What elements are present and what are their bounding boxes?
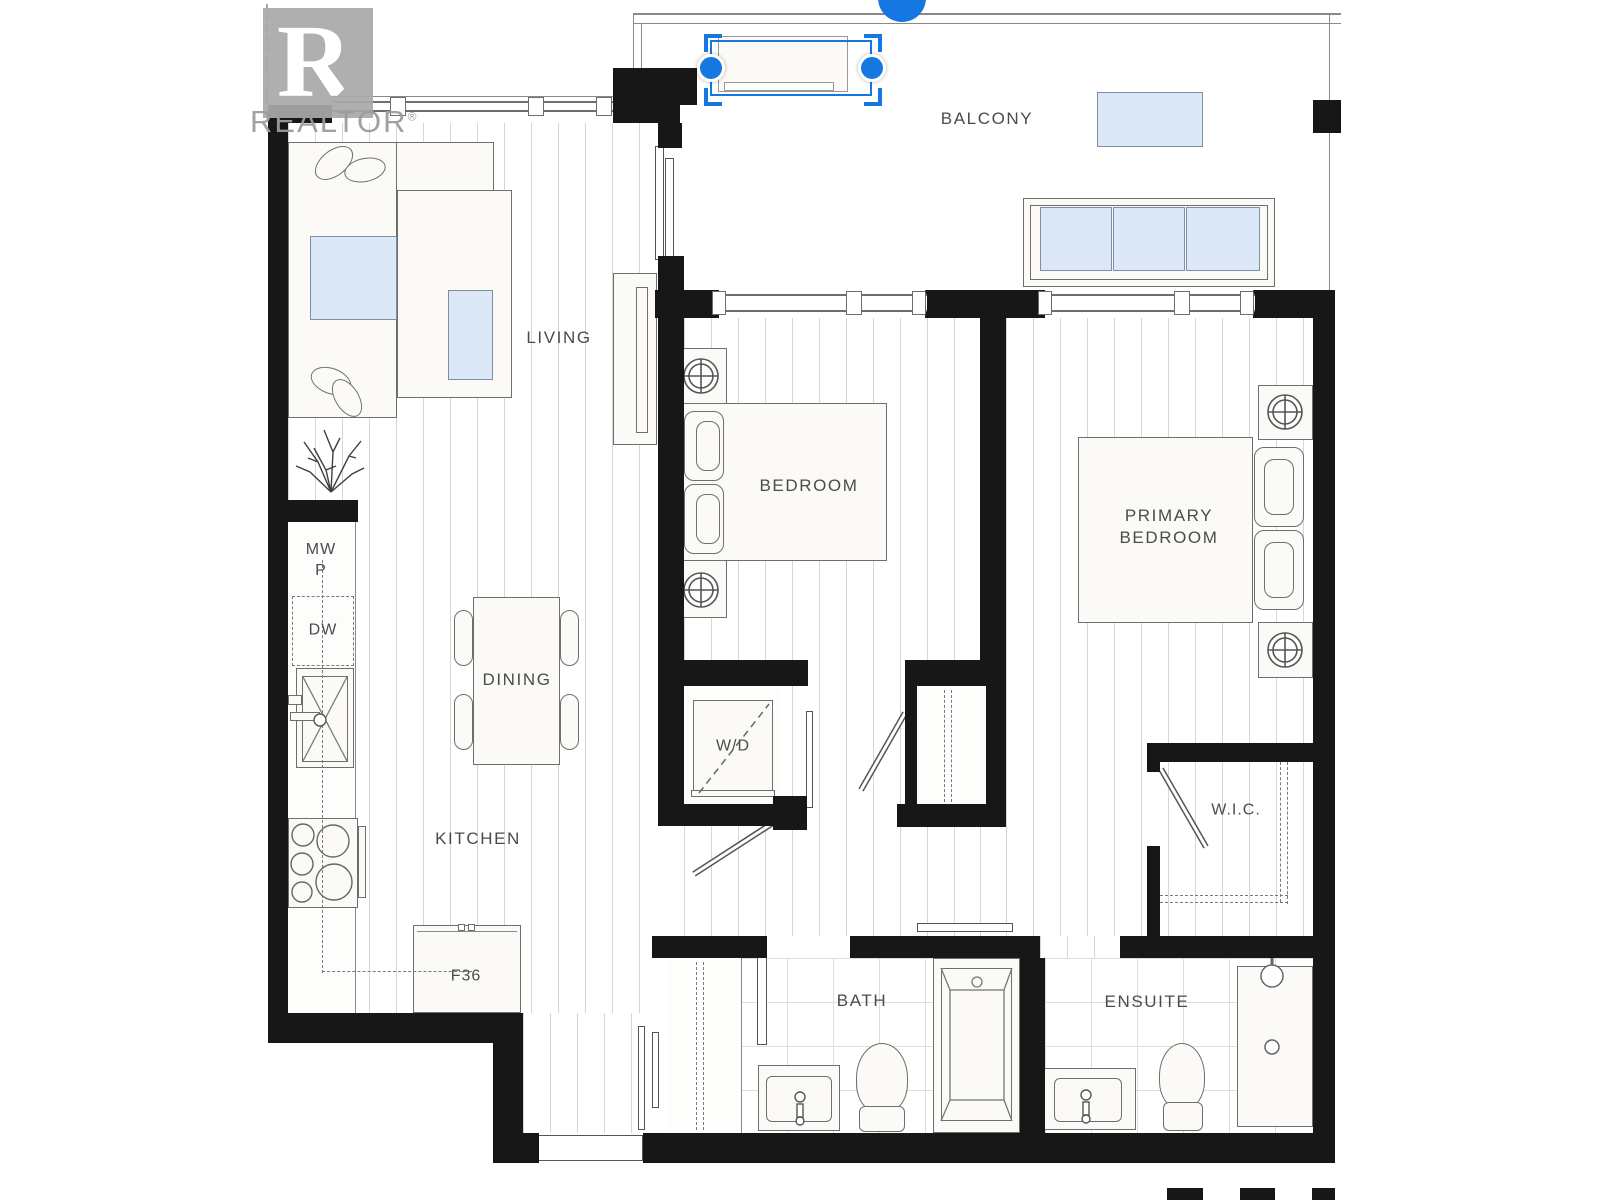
- wall-entry-step: [493, 1013, 523, 1135]
- window-mullion: [846, 291, 862, 315]
- wall-dash: [1312, 1188, 1335, 1200]
- wall-wic-top: [1147, 743, 1315, 762]
- entry-door-threshold: [537, 1135, 643, 1161]
- window-mullion: [912, 291, 926, 315]
- wall-segment: [658, 123, 682, 148]
- window-mullion: [1038, 291, 1052, 315]
- room-label-primary: PRIMARY BEDROOM: [1119, 505, 1218, 549]
- fridge-line: [417, 931, 517, 932]
- wall-closet-left: [905, 660, 917, 827]
- fridge-tick: [458, 924, 465, 931]
- rotate-handle[interactable]: [878, 0, 926, 22]
- window-sill-line: [332, 96, 613, 97]
- bed-pillow-roll: [696, 494, 720, 544]
- balcony-railing-left-inner: [641, 23, 642, 68]
- window-mullion: [528, 97, 544, 116]
- wall-living-bedroom: [658, 318, 684, 660]
- floor-passage: [980, 826, 1006, 936]
- washer-dryer-shelf: [691, 790, 775, 797]
- entry-closet-slider: [652, 1032, 659, 1108]
- wd-door-panel: [806, 711, 813, 808]
- balcony-sofa-cushion: [1113, 207, 1185, 271]
- floor-ensuite-door-gap: [1040, 936, 1120, 958]
- wall-bedroom-top: [655, 290, 719, 318]
- wall-bottom: [643, 1133, 1315, 1163]
- window-mullion: [1240, 291, 1254, 315]
- room-label-dining: DINING: [482, 669, 551, 691]
- dining-chair: [560, 610, 579, 666]
- wall-closet-bottom: [897, 804, 1006, 827]
- window-mullion: [1174, 291, 1190, 315]
- watermark-brand-text: REALTOR: [250, 104, 408, 139]
- tv-console: [613, 273, 657, 445]
- nightstand: [1258, 622, 1313, 678]
- room-label-balcony: BALCONY: [941, 108, 1033, 130]
- fridge-tick: [468, 924, 475, 931]
- room-label-living: LIVING: [526, 327, 591, 349]
- wall-bedroom-top: [925, 290, 1045, 318]
- fixture-label-fridge: F36: [451, 967, 482, 988]
- ensuite-toilet-tank: [1163, 1102, 1203, 1131]
- selection-frame[interactable]: [710, 40, 872, 96]
- balcony-sofa-cushion: [1040, 207, 1112, 271]
- hall-slider-panel: [917, 923, 1013, 932]
- sofa-cushion: [310, 236, 397, 320]
- dining-chair: [560, 694, 579, 750]
- wall-right: [1313, 290, 1335, 1163]
- wic-shelf-line: [1280, 762, 1281, 902]
- watermark-brand: REALTOR®: [250, 104, 418, 140]
- entry-closet-interior: [667, 958, 742, 1133]
- window-mullion: [596, 97, 612, 116]
- closet-rod-line: [696, 962, 697, 1130]
- entry-closet-slider: [638, 1026, 645, 1130]
- wall-dash: [1167, 1188, 1203, 1200]
- bed-pillow-roll: [1264, 542, 1294, 598]
- wall-wd-corner: [773, 796, 807, 830]
- balcony-railing-right: [1329, 13, 1330, 290]
- wall-pier: [613, 68, 697, 105]
- primary-window: [1043, 294, 1255, 312]
- wall-ensuite-top: [1120, 936, 1315, 958]
- balcony-slider-panel: [655, 146, 664, 260]
- shower: [1237, 966, 1313, 1127]
- selection-corner-bracket: [704, 88, 722, 106]
- wall-dash: [1240, 1188, 1275, 1200]
- balcony-railing: [633, 13, 1341, 15]
- balcony-railing-left: [633, 13, 634, 68]
- faucet-lever: [290, 712, 320, 721]
- wall-wd-bottom: [658, 804, 782, 826]
- room-label-bath: BATH: [837, 990, 887, 1012]
- floor-plan-canvas: BALCONY LIVING BEDROOM PRIMARY BEDROOM D…: [0, 0, 1600, 1200]
- room-label-kitchen: KITCHEN: [435, 828, 521, 850]
- room-label-ensuite: ENSUITE: [1105, 991, 1190, 1013]
- dining-chair: [454, 694, 473, 750]
- bath-sink: [766, 1076, 832, 1122]
- selection-corner-bracket: [704, 34, 722, 52]
- registered-mark: ®: [408, 110, 419, 124]
- fixture-label-mwp: MW P: [306, 540, 336, 582]
- resize-handle-right[interactable]: [858, 54, 886, 82]
- wall-balcony-pier: [1313, 100, 1341, 133]
- wall-bath-top: [850, 936, 1040, 958]
- nightstand: [1258, 385, 1313, 440]
- selection-corner-bracket: [864, 88, 882, 106]
- bath-toilet-tank: [859, 1106, 905, 1132]
- wall-segment: [493, 1133, 539, 1163]
- counter-dashed-line: [322, 971, 472, 972]
- balcony-table: [1097, 92, 1203, 147]
- ensuite-toilet-bowl: [1159, 1043, 1205, 1109]
- wall-counter-stub: [268, 500, 358, 522]
- room-label-wic: W.I.C.: [1211, 801, 1261, 822]
- wall-kitchen-bottom: [268, 1013, 493, 1043]
- closet-rod-line: [951, 690, 952, 802]
- ensuite-sink: [1054, 1078, 1122, 1122]
- dining-chair: [454, 610, 473, 666]
- closet-rod-line: [944, 690, 945, 802]
- wall-wd-left: [658, 660, 684, 826]
- room-label-wd: W/D: [716, 737, 750, 758]
- wall-closet-right: [986, 660, 1006, 827]
- closet-rod-line: [703, 962, 704, 1130]
- selection-corner-bracket: [864, 34, 882, 52]
- bathtub-inner: [941, 968, 1012, 1121]
- wic-shelf-line: [1160, 902, 1288, 903]
- stove: [288, 818, 358, 908]
- balcony-sofa-cushion: [1186, 207, 1260, 271]
- bath-toilet-bowl: [856, 1043, 908, 1113]
- realtor-logo-icon: R: [263, 8, 373, 118]
- wall-wic-left: [1147, 846, 1160, 938]
- wall-bedroom-divider: [980, 318, 1006, 660]
- balcony-slider-panel: [665, 158, 674, 272]
- bath-door-panel: [757, 955, 767, 1045]
- window-mullion: [712, 291, 726, 315]
- bed-pillow-roll: [1264, 459, 1294, 515]
- fixture-label-dw: DW: [309, 621, 338, 642]
- resize-handle-left[interactable]: [697, 54, 725, 82]
- wall-wic-left: [1147, 743, 1160, 772]
- faucet-base: [288, 695, 302, 705]
- tv: [636, 287, 648, 433]
- wall-bath-top: [652, 936, 767, 958]
- room-label-bedroom: BEDROOM: [759, 475, 858, 497]
- wic-shelf-line: [1160, 895, 1288, 896]
- wall-bath-ensuite-divider: [1020, 958, 1045, 1133]
- wic-shelf-line: [1287, 762, 1288, 904]
- wall-segment: [613, 105, 680, 123]
- bed-pillow-roll: [696, 421, 720, 471]
- stove-handle: [358, 826, 366, 898]
- balcony-railing-inner: [633, 23, 1341, 24]
- wall-left: [268, 105, 288, 1043]
- coffee-table: [448, 290, 493, 380]
- bedroom-window: [717, 294, 927, 312]
